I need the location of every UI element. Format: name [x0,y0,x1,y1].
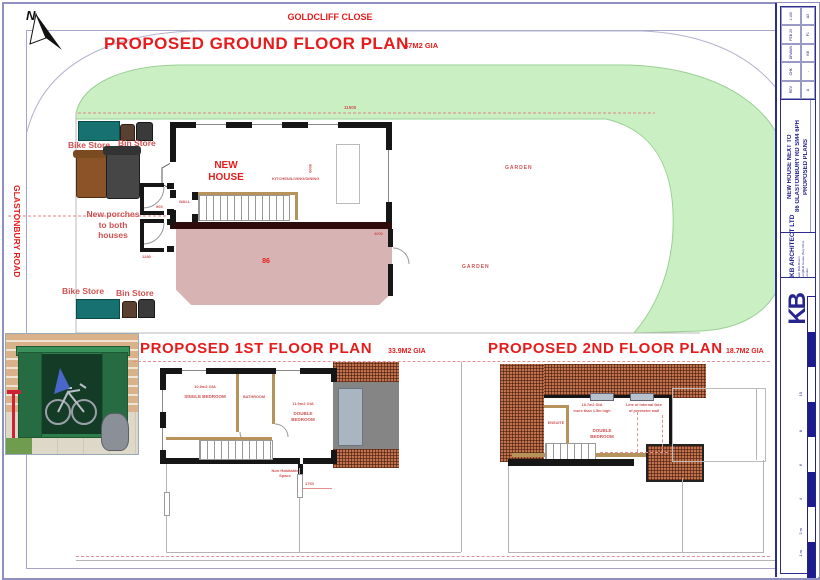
firm-contact-3: London [805,233,809,278]
road-label-glastonbury: GLASTONBURY ROAD [12,185,22,315]
second-gia-note-2: more than 1.5m high [566,409,618,413]
leader-line [662,415,663,452]
outline-line [756,388,757,460]
reference-line [133,361,770,362]
single-bedroom-label: SINGLE BEDROOM [182,394,228,400]
window-marker [297,474,303,498]
project-line-2: 86 GLASTONBURY RD SM4 6PH [794,100,802,233]
drawing-sheet: N GOLDCLIFF CLOSE PROPOSED GROUND FLOOR … [0,0,820,580]
rev-cell: A3 [801,7,815,25]
window-marker [196,122,226,128]
porch-wall [140,211,164,215]
wall-segment [170,190,176,198]
second-gia-note-1: 18.7m2 GIA [566,403,618,407]
rev-cell: 1:100 [781,7,801,25]
scale-label-6: 6 [798,464,803,466]
scale-bar-segment [808,402,815,437]
roof-tiles [333,449,399,468]
rev-cell-text: A [806,89,810,91]
house86-door-arc [393,248,409,264]
dim-label: 1280 [142,254,151,259]
garden-label-upper: GARDEN [505,165,533,171]
wall-segment [192,214,198,222]
window-marker [308,122,338,128]
bathroom-label: BATHROOM [235,395,273,399]
photo-bicycle [40,354,102,434]
rev-cell: - [801,62,815,80]
first-floor-title: PROPOSED 1ST FLOOR PLAN [140,340,372,357]
outline-line [461,362,462,552]
wheelie-bin-grey [106,150,140,199]
window-marker [252,122,282,128]
roof-outline [672,388,766,462]
rev-cell-text: REV [789,86,793,93]
wall-segment [508,459,634,466]
rev-cell: P1 [801,25,815,43]
leader-line [600,452,668,453]
rev-cell: REV [781,81,801,99]
rev-cell-text: DRAWN [789,46,793,59]
scale-label-4: 4 [798,498,803,500]
photo-bike-pump-handle [7,390,21,394]
scale-bar-segment [808,542,815,577]
wall-segment [386,122,392,150]
skylight [338,388,363,446]
outline-line [166,552,461,553]
partition-wall [236,374,239,432]
outline-line [763,460,764,552]
rev-cell: A [801,81,815,99]
porch-post [167,219,174,225]
window-marker [276,368,300,374]
non-habitable-label: Non Habitable Space [270,468,300,478]
double-bedroom-gia: 11.9m2 GIA [280,401,326,406]
wall-segment [331,368,337,382]
dim-label: 9000 [308,164,313,173]
rev-cell: KB [801,44,815,62]
firm-name: KB ARCHITECT LTD [788,233,797,278]
roof-tiles-side [500,364,544,462]
revision-table: 1:100 A3 FEB 23 P1 DRAWN KB CHK - REV A [781,7,815,99]
wheelie-bin-grey-lid [103,146,141,155]
leader-line [637,412,638,452]
partition-wall [272,374,275,424]
scale-label-8: 8 [798,430,803,432]
rev-cell-text: 1:100 [789,12,793,21]
porches-note: New porches to both houses [84,209,142,241]
staircase-first [199,440,273,460]
drawing-title: PROPOSED PLANS [802,100,811,233]
perimeter-note-2: of perimeter wall [620,409,668,413]
rev-cell-text: CHK [789,68,793,75]
window-marker [386,150,392,202]
rev-cell-text: A3 [806,14,810,18]
dim-label: 11500 [344,105,356,110]
scale-bar-segment [808,332,815,367]
rev-cell: CHK [781,62,801,80]
staircase-ground [198,195,290,221]
outline-line [508,466,509,552]
dim-label: 4000 [374,231,383,236]
porch-door-arc [143,223,164,244]
dim-line [300,488,332,489]
porch-post [167,209,174,215]
wall-segment [303,458,337,464]
scale-label-10: 10 [798,392,803,396]
firm-cell: KB ARCHITECT LTD Sam Bell-Brown Longfiel… [781,232,815,278]
porch-post [167,246,174,252]
rev-cell: DRAWN [781,44,801,62]
bin-small [122,301,137,318]
porch-wall [140,219,164,223]
rooflight-marker [630,393,654,401]
scale-label-2m: 2 m [798,528,803,535]
outline-line [508,552,764,553]
dim-label: 1760 [305,481,314,486]
boundary-dashed-line [76,556,770,557]
photo-grass [6,438,32,454]
photo-backpack [101,413,129,451]
project-title-cell: NEW HOUSE NEXT TO 86 GLASTONBURY RD SM4 … [781,99,815,233]
bike-store-top [78,121,120,141]
scale-bar [807,296,816,578]
rev-cell: FEB 23 [781,25,801,43]
wall-label: WALL [179,199,190,204]
wall-segment [388,264,393,296]
stair-rail [295,192,298,220]
garden-label-lower: GARDEN [462,264,490,270]
road-label-goldcliff: GOLDCLIFF CLOSE [283,12,377,22]
second-floor-gia: 18.7M2 GIA [726,348,764,355]
bedroom-door-arc [275,424,288,437]
scale-bar-segment [808,472,815,507]
wall-segment [192,192,198,200]
outline-line [76,560,775,561]
wall-segment [388,229,393,247]
existing-house-86 [176,229,392,305]
porch-wall [140,183,164,187]
firm-contact-1: Sam Bell-Brown [797,233,801,278]
porch-post [167,183,174,189]
rev-cell-text: - [806,71,810,72]
double-bedroom-label: DOUBLE BEDROOM [284,411,322,423]
photo-bike-pump [12,392,15,438]
window-marker [160,390,166,412]
photo-shed-door-left [18,352,42,438]
kitchen-island [336,144,360,204]
bike-store-bottom-label: Bike Store [62,286,104,296]
perimeter-note-1: Line of internal face [620,403,668,407]
rev-cell-text: P1 [806,32,810,36]
project-line-1: NEW HOUSE NEXT TO [786,100,794,233]
dim-label: 900 [156,204,163,209]
kitchen-label: KITCHEN/LIVING/DINING [272,176,319,181]
second-floor-title: PROPOSED 2ND FLOOR PLAN [488,340,723,357]
rev-cell-text: KB [806,51,810,56]
outline-line [682,478,683,552]
ground-floor-gia: 47M2 GIA [404,41,438,50]
bike-store-photo [5,333,139,455]
bin-store-bottom-label: Bin Store [116,288,154,298]
scale-label-1m: 1 m [798,550,803,557]
porch-wall [140,248,164,252]
rev-cell-text: FEB 23 [789,29,793,41]
wheelie-bin-brown [76,154,108,198]
ground-floor-title: PROPOSED GROUND FLOOR PLAN [104,34,409,54]
house-number-86: 86 [254,258,278,265]
bin-small [138,299,155,318]
second-double-bedroom-label: DOUBLE BEDROOM [582,428,622,440]
first-floor-gia: 33.9M2 GIA [388,348,426,355]
firm-contact-2: Longfield House, Bury Drive [801,233,805,278]
wall-segment [170,122,176,162]
rooflight-marker [590,393,614,401]
roof-tiles [333,362,399,382]
window-marker [164,492,170,516]
new-house-label: NEW HOUSE [203,160,249,183]
bike-store-bottom [76,299,120,319]
ensuite-label: ENSUITE [544,421,568,425]
single-bedroom-gia: 10.9m2 GIA [178,384,232,389]
window-marker [182,368,206,374]
party-wall [170,222,392,229]
north-arrow: N [20,4,70,56]
